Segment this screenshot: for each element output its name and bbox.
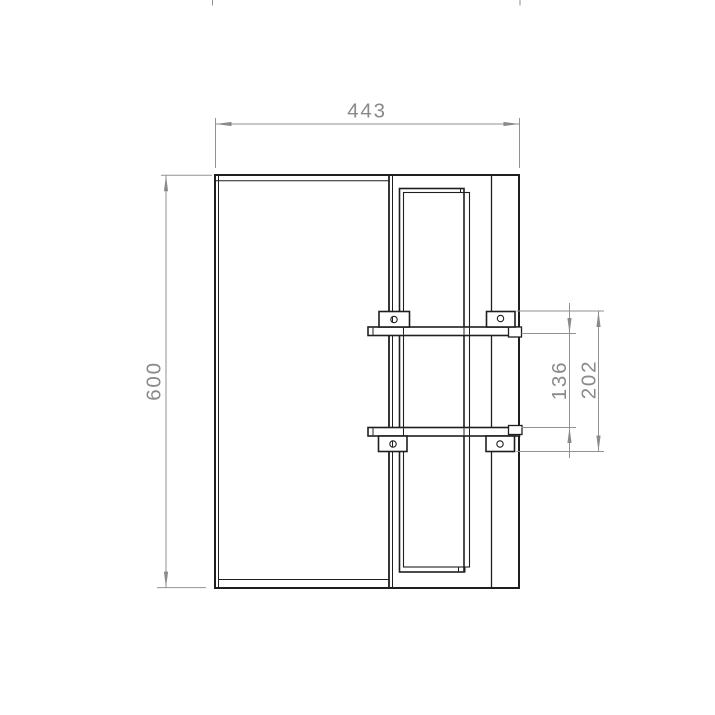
arrowhead-down xyxy=(596,436,600,452)
arrowhead-up xyxy=(567,428,571,444)
dim-width-label: 443 xyxy=(347,100,387,123)
bracket-hole xyxy=(391,316,397,322)
dim-height-label: 600 xyxy=(143,361,166,401)
top-rail xyxy=(368,327,522,337)
arrowhead-down xyxy=(567,318,571,334)
bracket-hole xyxy=(497,441,503,447)
dimension-overall-height: 600 xyxy=(143,175,213,587)
arrowhead-right xyxy=(504,122,520,126)
top-rail-bar xyxy=(368,327,520,336)
technical-drawing: 443 600 136 202 xyxy=(0,0,715,715)
dim-rail-outer-label: 202 xyxy=(578,360,601,400)
door-panel xyxy=(400,189,470,573)
crop-ticks xyxy=(213,0,521,6)
dimension-rail-spacing-inner: 136 xyxy=(522,303,577,458)
door-front-rect xyxy=(400,189,465,573)
dimension-overall-width: 443 xyxy=(216,100,520,169)
bottom-rail xyxy=(368,426,522,437)
arrowhead-up xyxy=(164,175,168,191)
door-back-rect xyxy=(404,193,470,568)
arrowhead-down xyxy=(164,572,168,588)
drawing-canvas: 443 600 136 202 xyxy=(0,0,715,715)
top-rail-end-cap xyxy=(509,327,522,337)
arrowhead-up xyxy=(596,311,600,327)
arrowhead-left xyxy=(216,122,232,126)
bottom-rail-bar xyxy=(368,428,520,437)
bottom-rail-end-cap xyxy=(509,426,523,435)
dim-rail-inner-label: 136 xyxy=(548,361,571,401)
cabinet-outline xyxy=(215,175,519,588)
cabinet-body xyxy=(215,175,519,588)
bracket-hole xyxy=(497,315,503,321)
